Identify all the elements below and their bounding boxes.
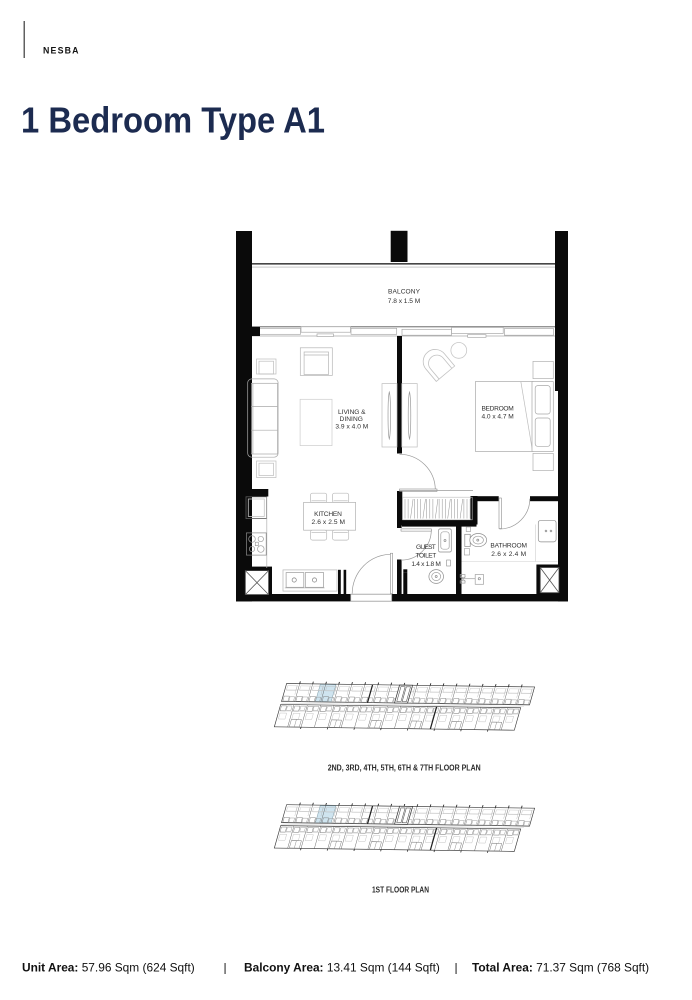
svg-text:TOILET: TOILET <box>416 553 437 560</box>
svg-text:BATHROOM: BATHROOM <box>490 542 527 549</box>
svg-text:1.4 x 1.8 M: 1.4 x 1.8 M <box>411 561 441 568</box>
svg-text:2ND, 3RD, 4TH, 5TH, 6TH & 7TH: 2ND, 3RD, 4TH, 5TH, 6TH & 7TH FLOOR PLAN <box>328 763 481 773</box>
svg-text:7.8 x 1.5 M: 7.8 x 1.5 M <box>388 298 421 305</box>
svg-text:DINING: DINING <box>340 416 363 423</box>
svg-text:Balcony Area: 13.41 Sqm (144 S: Balcony Area: 13.41 Sqm (144 Sqft) <box>244 961 440 975</box>
svg-text:NESBA: NESBA <box>43 46 79 56</box>
svg-text:1ST FLOOR PLAN: 1ST FLOOR PLAN <box>372 885 429 895</box>
svg-text:BEDROOM: BEDROOM <box>481 406 513 413</box>
svg-text:2.6 x 2.4 M: 2.6 x 2.4 M <box>491 551 526 558</box>
svg-text:4.0 x 4.7 M: 4.0 x 4.7 M <box>481 414 513 421</box>
svg-text:|: | <box>224 961 227 975</box>
svg-text:LIVING &: LIVING & <box>338 409 366 416</box>
svg-text:Total Area: 71.37 Sqm (768 Sqf: Total Area: 71.37 Sqm (768 Sqft) <box>472 961 649 975</box>
svg-text:2.6 x 2.5 M: 2.6 x 2.5 M <box>312 519 346 526</box>
svg-text:GUEST: GUEST <box>416 544 436 551</box>
svg-text:1 Bedroom Type A1: 1 Bedroom Type A1 <box>21 100 325 141</box>
svg-text:KITCHEN: KITCHEN <box>314 511 342 518</box>
svg-text:3.9 x 4.0 M: 3.9 x 4.0 M <box>335 423 368 430</box>
svg-text:Unit Area: 57.96 Sqm (624 Sqft: Unit Area: 57.96 Sqm (624 Sqft) <box>22 961 195 975</box>
svg-text:|: | <box>455 961 458 975</box>
svg-text:BALCONY: BALCONY <box>388 289 421 296</box>
